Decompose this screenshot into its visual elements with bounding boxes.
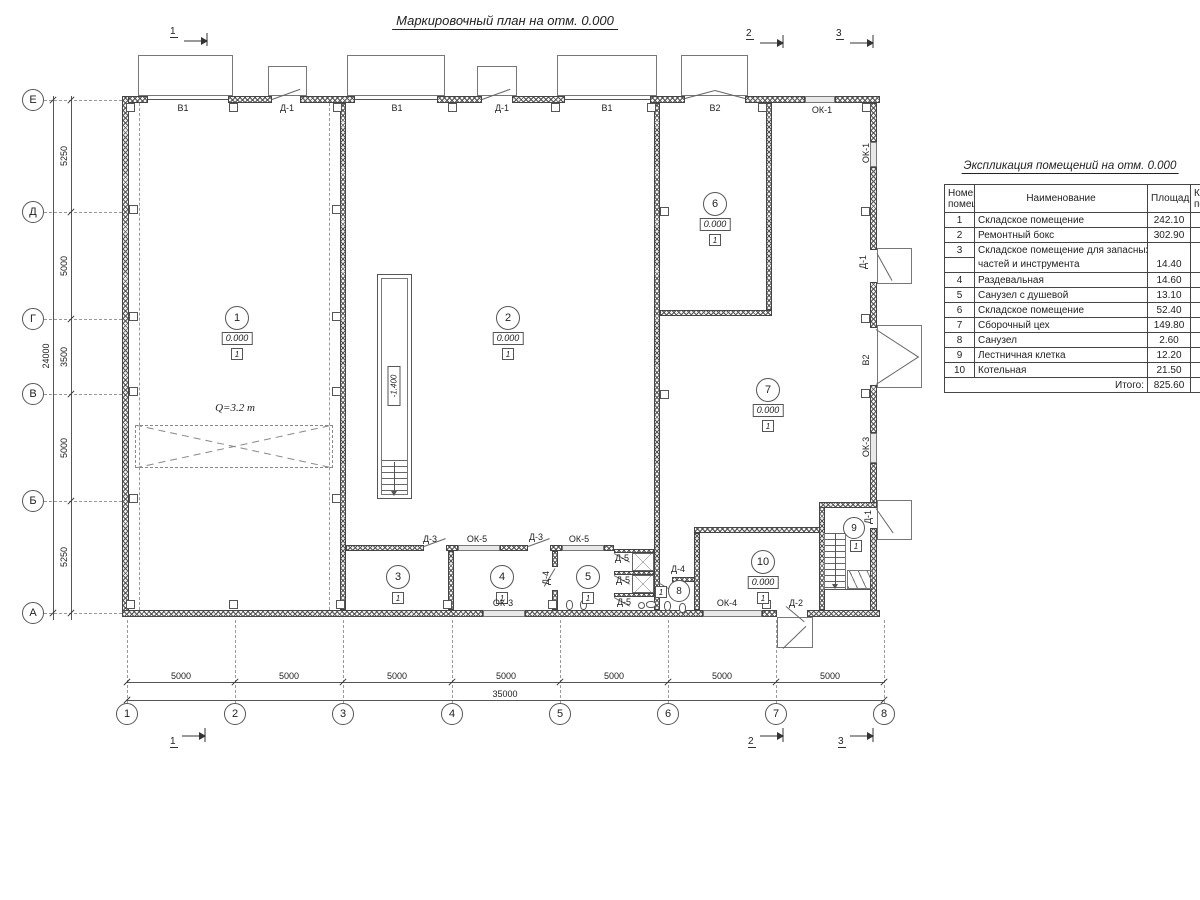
axis-line: [235, 620, 236, 703]
exterior-wall-segment: [745, 96, 805, 103]
cell-room-area: 52.40: [1148, 303, 1191, 318]
table-row: 1 Складское помещение 242.10: [945, 213, 1200, 228]
door-label-d1: Д-1: [858, 255, 868, 269]
column-pilaster: [336, 600, 345, 609]
interior-wall: [660, 310, 772, 316]
window-ok5: [562, 545, 604, 551]
dim-value: 5000: [59, 256, 69, 276]
section-mark-1-top: 1: [170, 26, 178, 38]
cell-room-category: [1191, 258, 1200, 273]
column-pilaster: [660, 390, 669, 399]
axis-row-d: Д: [22, 201, 44, 223]
canopy: [877, 248, 912, 284]
cell-room-number: 6: [945, 303, 975, 318]
exterior-wall-segment: [870, 282, 877, 328]
interior-wall: [654, 103, 660, 610]
gate-label-v2: В2: [861, 354, 871, 365]
window-label-ok1: ОК-1: [812, 105, 832, 115]
cell-room-category: [1191, 333, 1200, 348]
window-label-ok3: ОК-3: [493, 598, 513, 608]
cell-room-name: Раздевальная: [975, 273, 1148, 288]
column-pilaster: [758, 103, 767, 112]
interior-wall: [552, 551, 558, 567]
cell-room-number: 3: [945, 243, 975, 258]
canopy: [268, 66, 307, 96]
room-number-7: 7: [756, 378, 780, 402]
floor-plan-drawing: Маркировочный план на отм. 0.000 1 2 3: [0, 0, 1200, 900]
cell-room-number: [945, 258, 975, 273]
toilet-icon: [664, 601, 671, 611]
gate-v1-line: [148, 99, 228, 100]
column-pilaster: [333, 103, 342, 112]
cell-room-area: 149.80: [1148, 318, 1191, 333]
exterior-wall-segment: [437, 96, 482, 103]
section-mark-3-bottom: 3: [838, 736, 846, 748]
axis-line: [668, 620, 669, 703]
window-ok1: [870, 142, 877, 167]
stair-walk-line: [835, 533, 836, 585]
section-arrow-icon: [760, 32, 786, 48]
canopy: [557, 55, 657, 96]
dim-value: 5000: [171, 671, 191, 681]
section-arrow-icon: [182, 728, 208, 744]
interior-wall: [604, 545, 614, 551]
table-title: Экспликация помещений на отм. 0.000: [962, 160, 1179, 174]
section-mark-2-bottom: 2: [748, 736, 756, 748]
column-pilaster: [862, 103, 871, 112]
floor-type-mark: 1: [502, 348, 514, 360]
col-header-category: Капо: [1191, 185, 1200, 213]
interior-wall: [694, 533, 700, 610]
table-row: 8 Санузел 2.60: [945, 333, 1200, 348]
exterior-wall-segment: [870, 167, 877, 250]
door-label-d1: Д-1: [495, 103, 509, 113]
total-area: 825.60: [1148, 378, 1191, 393]
dim-value: 5000: [59, 438, 69, 458]
door-label-d4: Д-4: [671, 564, 685, 574]
door-label-d4: Д-4: [541, 571, 551, 585]
table-row: 10 Котельная 21.50: [945, 363, 1200, 378]
window-label-ok5: ОК-5: [467, 534, 487, 544]
axis-row-b: Б: [22, 490, 44, 512]
window-ok1: [805, 96, 835, 103]
cell-room-name: Санузел: [975, 333, 1148, 348]
column-pilaster: [551, 103, 560, 112]
interior-wall: [340, 103, 346, 610]
window-label-ok1: ОК-1: [861, 143, 871, 163]
toilet-icon: [646, 601, 656, 608]
cell-room-category: [1191, 228, 1200, 243]
exterior-wall-segment: [762, 610, 777, 617]
table-row: 9 Лестничная клетка 12.20: [945, 348, 1200, 363]
table-row: 3 Складское помещение для запасных: [945, 243, 1200, 258]
elevation-mark: 0.000: [493, 332, 524, 345]
axis-line: [884, 620, 885, 703]
elevation-mark: 0.000: [748, 576, 779, 589]
dim-value: 5000: [604, 671, 624, 681]
exterior-wall-left: [122, 96, 129, 617]
gate-label-v2: В2: [709, 103, 720, 113]
floor-type-mark: 1: [850, 540, 862, 552]
exterior-wall-segment: [835, 96, 880, 103]
dim-value: 5250: [59, 146, 69, 166]
section-arrow-icon: [760, 728, 786, 744]
axis-line: [44, 394, 122, 395]
page-title: Маркировочный план на отм. 0.000: [392, 13, 618, 30]
exterior-wall-segment: [870, 463, 877, 505]
pit-arrow-line: [394, 462, 395, 492]
window-ok5: [458, 545, 500, 551]
interior-wall: [766, 103, 772, 310]
column-pilaster: [129, 387, 138, 396]
column-pilaster: [861, 314, 870, 323]
cell-room-number: 9: [945, 348, 975, 363]
room-schedule-table: Номерпомещ. Наименование Площадь Капо 1 …: [944, 184, 1200, 393]
column-pilaster: [129, 312, 138, 321]
axis-line: [44, 501, 122, 502]
crane-capacity-label: Q=3.2 т: [215, 402, 255, 414]
door-label-d1: Д-1: [280, 103, 294, 113]
column-pilaster: [229, 103, 238, 112]
col-header-area: Площадь: [1148, 185, 1191, 213]
table-row: 6 Складское помещение 52.40: [945, 303, 1200, 318]
column-pilaster: [129, 205, 138, 214]
door-label-d5: Д-5: [615, 553, 629, 563]
cell-room-number: 2: [945, 228, 975, 243]
axis-col-7: 7: [765, 703, 787, 725]
table-row: 4 Раздевальная 14.60: [945, 273, 1200, 288]
column-pilaster: [861, 389, 870, 398]
floor-type-mark: 1: [762, 420, 774, 432]
axis-col-6: 6: [657, 703, 679, 725]
dim-value: 5000: [279, 671, 299, 681]
axis-line: [776, 620, 777, 703]
exterior-wall-segment: [870, 103, 877, 142]
column-pilaster: [126, 103, 135, 112]
toilet-icon: [566, 600, 573, 610]
crane-rail-dashed: [139, 103, 140, 610]
door-label-d5: Д-5: [616, 575, 630, 585]
gate-label-v1: В1: [177, 103, 188, 113]
cell-room-area: 302.90: [1148, 228, 1191, 243]
gate-v1-line: [565, 99, 650, 100]
arrow-down-icon: [391, 491, 397, 496]
cell-room-area: 242.10: [1148, 213, 1191, 228]
axis-line: [452, 620, 453, 703]
cell-room-name: Ремонтный бокс: [975, 228, 1148, 243]
exterior-wall-segment: [512, 96, 565, 103]
cell-room-category: [1191, 288, 1200, 303]
elevation-mark: 0.000: [700, 218, 731, 231]
entrance-porch: [777, 617, 813, 648]
stair-lower-flight: [847, 570, 873, 589]
axis-col-3: 3: [332, 703, 354, 725]
column-pilaster: [443, 600, 452, 609]
column-pilaster: [332, 205, 341, 214]
column-pilaster: [448, 103, 457, 112]
interior-wall: [500, 545, 528, 551]
room-number-4: 4: [490, 565, 514, 589]
cell-room-area: 14.60: [1148, 273, 1191, 288]
dim-total: 35000: [492, 689, 517, 699]
exterior-wall-segment: [807, 610, 880, 617]
section-mark-3-top: 3: [836, 28, 844, 40]
cell-room-category: [1191, 273, 1200, 288]
total-label: Итого:: [945, 378, 1148, 393]
cell-room-area: 21.50: [1148, 363, 1191, 378]
cell-room-number: 5: [945, 288, 975, 303]
table-header-row: Номерпомещ. Наименование Площадь Капо: [945, 185, 1200, 213]
table-row: 7 Сборочный цех 149.80: [945, 318, 1200, 333]
cell-room-name: Санузел с душевой: [975, 288, 1148, 303]
room-number-6: 6: [703, 192, 727, 216]
column-pilaster: [332, 494, 341, 503]
axis-line: [44, 613, 122, 614]
interior-wall: [346, 545, 424, 551]
exterior-wall-segment: [228, 96, 272, 103]
window-label-ok5: ОК-5: [569, 534, 589, 544]
axis-line: [44, 319, 122, 320]
axis-col-1: 1: [116, 703, 138, 725]
dim-total: 24000: [41, 343, 51, 368]
cell-room-area: 2.60: [1148, 333, 1191, 348]
drain-icon: [638, 602, 645, 609]
axis-col-8: 8: [873, 703, 895, 725]
column-pilaster: [229, 600, 238, 609]
floor-type-mark: 1: [582, 592, 594, 604]
table-row: 2 Ремонтный бокс 302.90: [945, 228, 1200, 243]
room-number-8: 8: [668, 580, 690, 602]
cell-empty: [1191, 378, 1200, 393]
floor-type-mark: 1: [392, 592, 404, 604]
window-ok3: [483, 610, 525, 617]
cell-room-category: [1191, 213, 1200, 228]
column-pilaster: [647, 103, 656, 112]
axis-line: [44, 100, 122, 101]
cell-room-number: 4: [945, 273, 975, 288]
cell-room-number: 10: [945, 363, 975, 378]
room-number-9: 9: [843, 517, 865, 539]
column-pilaster: [332, 387, 341, 396]
column-pilaster: [332, 312, 341, 321]
cell-room-area: [1148, 243, 1191, 258]
axis-line: [343, 620, 344, 703]
table-row: частей и инструмента 14.40: [945, 258, 1200, 273]
dim-value: 3500: [59, 347, 69, 367]
floor-type-mark: 1: [231, 348, 243, 360]
table-total-row: Итого: 825.60: [945, 378, 1200, 393]
interior-wall: [819, 502, 877, 508]
axis-line: [560, 620, 561, 703]
cell-room-category: [1191, 318, 1200, 333]
section-arrow-icon: [184, 30, 210, 46]
room-number-2: 2: [496, 306, 520, 330]
cell-room-area: 14.40: [1148, 258, 1191, 273]
shower-tray-icon: [632, 553, 654, 571]
cell-room-name: Сборочный цех: [975, 318, 1148, 333]
interior-wall: [694, 527, 825, 533]
floor-type-mark: 1: [655, 586, 667, 598]
cell-room-category: [1191, 243, 1200, 258]
cell-room-number: 8: [945, 333, 975, 348]
column-pilaster: [861, 207, 870, 216]
room-number-3: 3: [386, 565, 410, 589]
section-arrow-icon: [850, 32, 876, 48]
door-label-d3: Д-3: [423, 534, 437, 544]
cell-room-category: [1191, 303, 1200, 318]
stair-edge-line: [824, 589, 873, 590]
dimension-line: [127, 700, 884, 701]
canopy: [138, 55, 233, 96]
column-pilaster: [660, 207, 669, 216]
elevation-mark: 0.000: [753, 404, 784, 417]
column-pilaster: [548, 600, 557, 609]
crane-cross-icon: [135, 425, 333, 468]
section-mark-1-bottom: 1: [170, 736, 178, 748]
axis-col-5: 5: [549, 703, 571, 725]
door-label-d3: Д-3: [529, 532, 543, 542]
axis-row-a: А: [22, 602, 44, 624]
dimension-line: [53, 96, 54, 620]
room-number-5: 5: [576, 565, 600, 589]
gate-label-v1: В1: [601, 103, 612, 113]
toilet-icon: [679, 603, 686, 613]
dim-value: 5000: [820, 671, 840, 681]
cell-room-name: Складское помещение: [975, 303, 1148, 318]
dim-value: 5000: [496, 671, 516, 681]
table-row: 5 Санузел с душевой 13.10: [945, 288, 1200, 303]
cell-room-area: 12.20: [1148, 348, 1191, 363]
col-header-number: Номерпомещ.: [945, 185, 975, 213]
dim-value: 5000: [712, 671, 732, 681]
cell-room-name: Складское помещение: [975, 213, 1148, 228]
section-arrow-icon: [850, 728, 876, 744]
door-label-d5: Д-5: [617, 597, 631, 607]
gate-v1-line: [355, 99, 437, 100]
door-label-d2: Д-2: [789, 598, 803, 608]
exterior-wall-segment: [300, 96, 355, 103]
window-ok3: [870, 433, 877, 463]
gate-label-v1: В1: [391, 103, 402, 113]
shower-tray-icon: [632, 575, 654, 593]
door-label-d1: Д-1: [863, 510, 873, 524]
room-number-1: 1: [225, 306, 249, 330]
dimension-line: [127, 682, 884, 683]
dimension-line: [71, 96, 72, 620]
cell-room-name: Котельная: [975, 363, 1148, 378]
cell-room-category: [1191, 363, 1200, 378]
floor-type-mark: 1: [757, 592, 769, 604]
pit-depth-label: -1.400: [388, 366, 401, 406]
cell-room-category: [1191, 348, 1200, 363]
canopy: [347, 55, 445, 96]
room-number-10: 10: [751, 550, 775, 574]
canopy: [877, 500, 912, 540]
window-label-ok3: ОК-3: [861, 437, 871, 457]
exterior-wall-segment: [525, 610, 703, 617]
dim-value: 5000: [387, 671, 407, 681]
axis-col-4: 4: [441, 703, 463, 725]
col-header-name: Наименование: [975, 185, 1148, 213]
canopy: [477, 66, 517, 96]
crane-rail-dashed: [329, 103, 330, 610]
column-pilaster: [126, 600, 135, 609]
axis-col-2: 2: [224, 703, 246, 725]
cell-room-name: Складское помещение для запасных: [975, 243, 1148, 258]
cell-room-number: 7: [945, 318, 975, 333]
axis-row-g: Г: [22, 308, 44, 330]
cell-room-area: 13.10: [1148, 288, 1191, 303]
window-ok4: [703, 610, 762, 617]
exterior-wall-segment: [650, 96, 685, 103]
cell-room-name: частей и инструмента: [975, 258, 1148, 273]
cell-room-number: 1: [945, 213, 975, 228]
axis-row-e: Е: [22, 89, 44, 111]
floor-type-mark: 1: [709, 234, 721, 246]
dim-value: 5250: [59, 547, 69, 567]
elevation-mark: 0.000: [222, 332, 253, 345]
section-mark-2-top: 2: [746, 28, 754, 40]
exterior-wall-segment: [122, 610, 483, 617]
axis-line: [127, 620, 128, 703]
axis-row-v: В: [22, 383, 44, 405]
axis-line: [44, 212, 122, 213]
cell-room-name: Лестничная клетка: [975, 348, 1148, 363]
window-label-ok4: ОК-4: [717, 598, 737, 608]
exterior-wall-segment: [870, 385, 877, 433]
column-pilaster: [129, 494, 138, 503]
